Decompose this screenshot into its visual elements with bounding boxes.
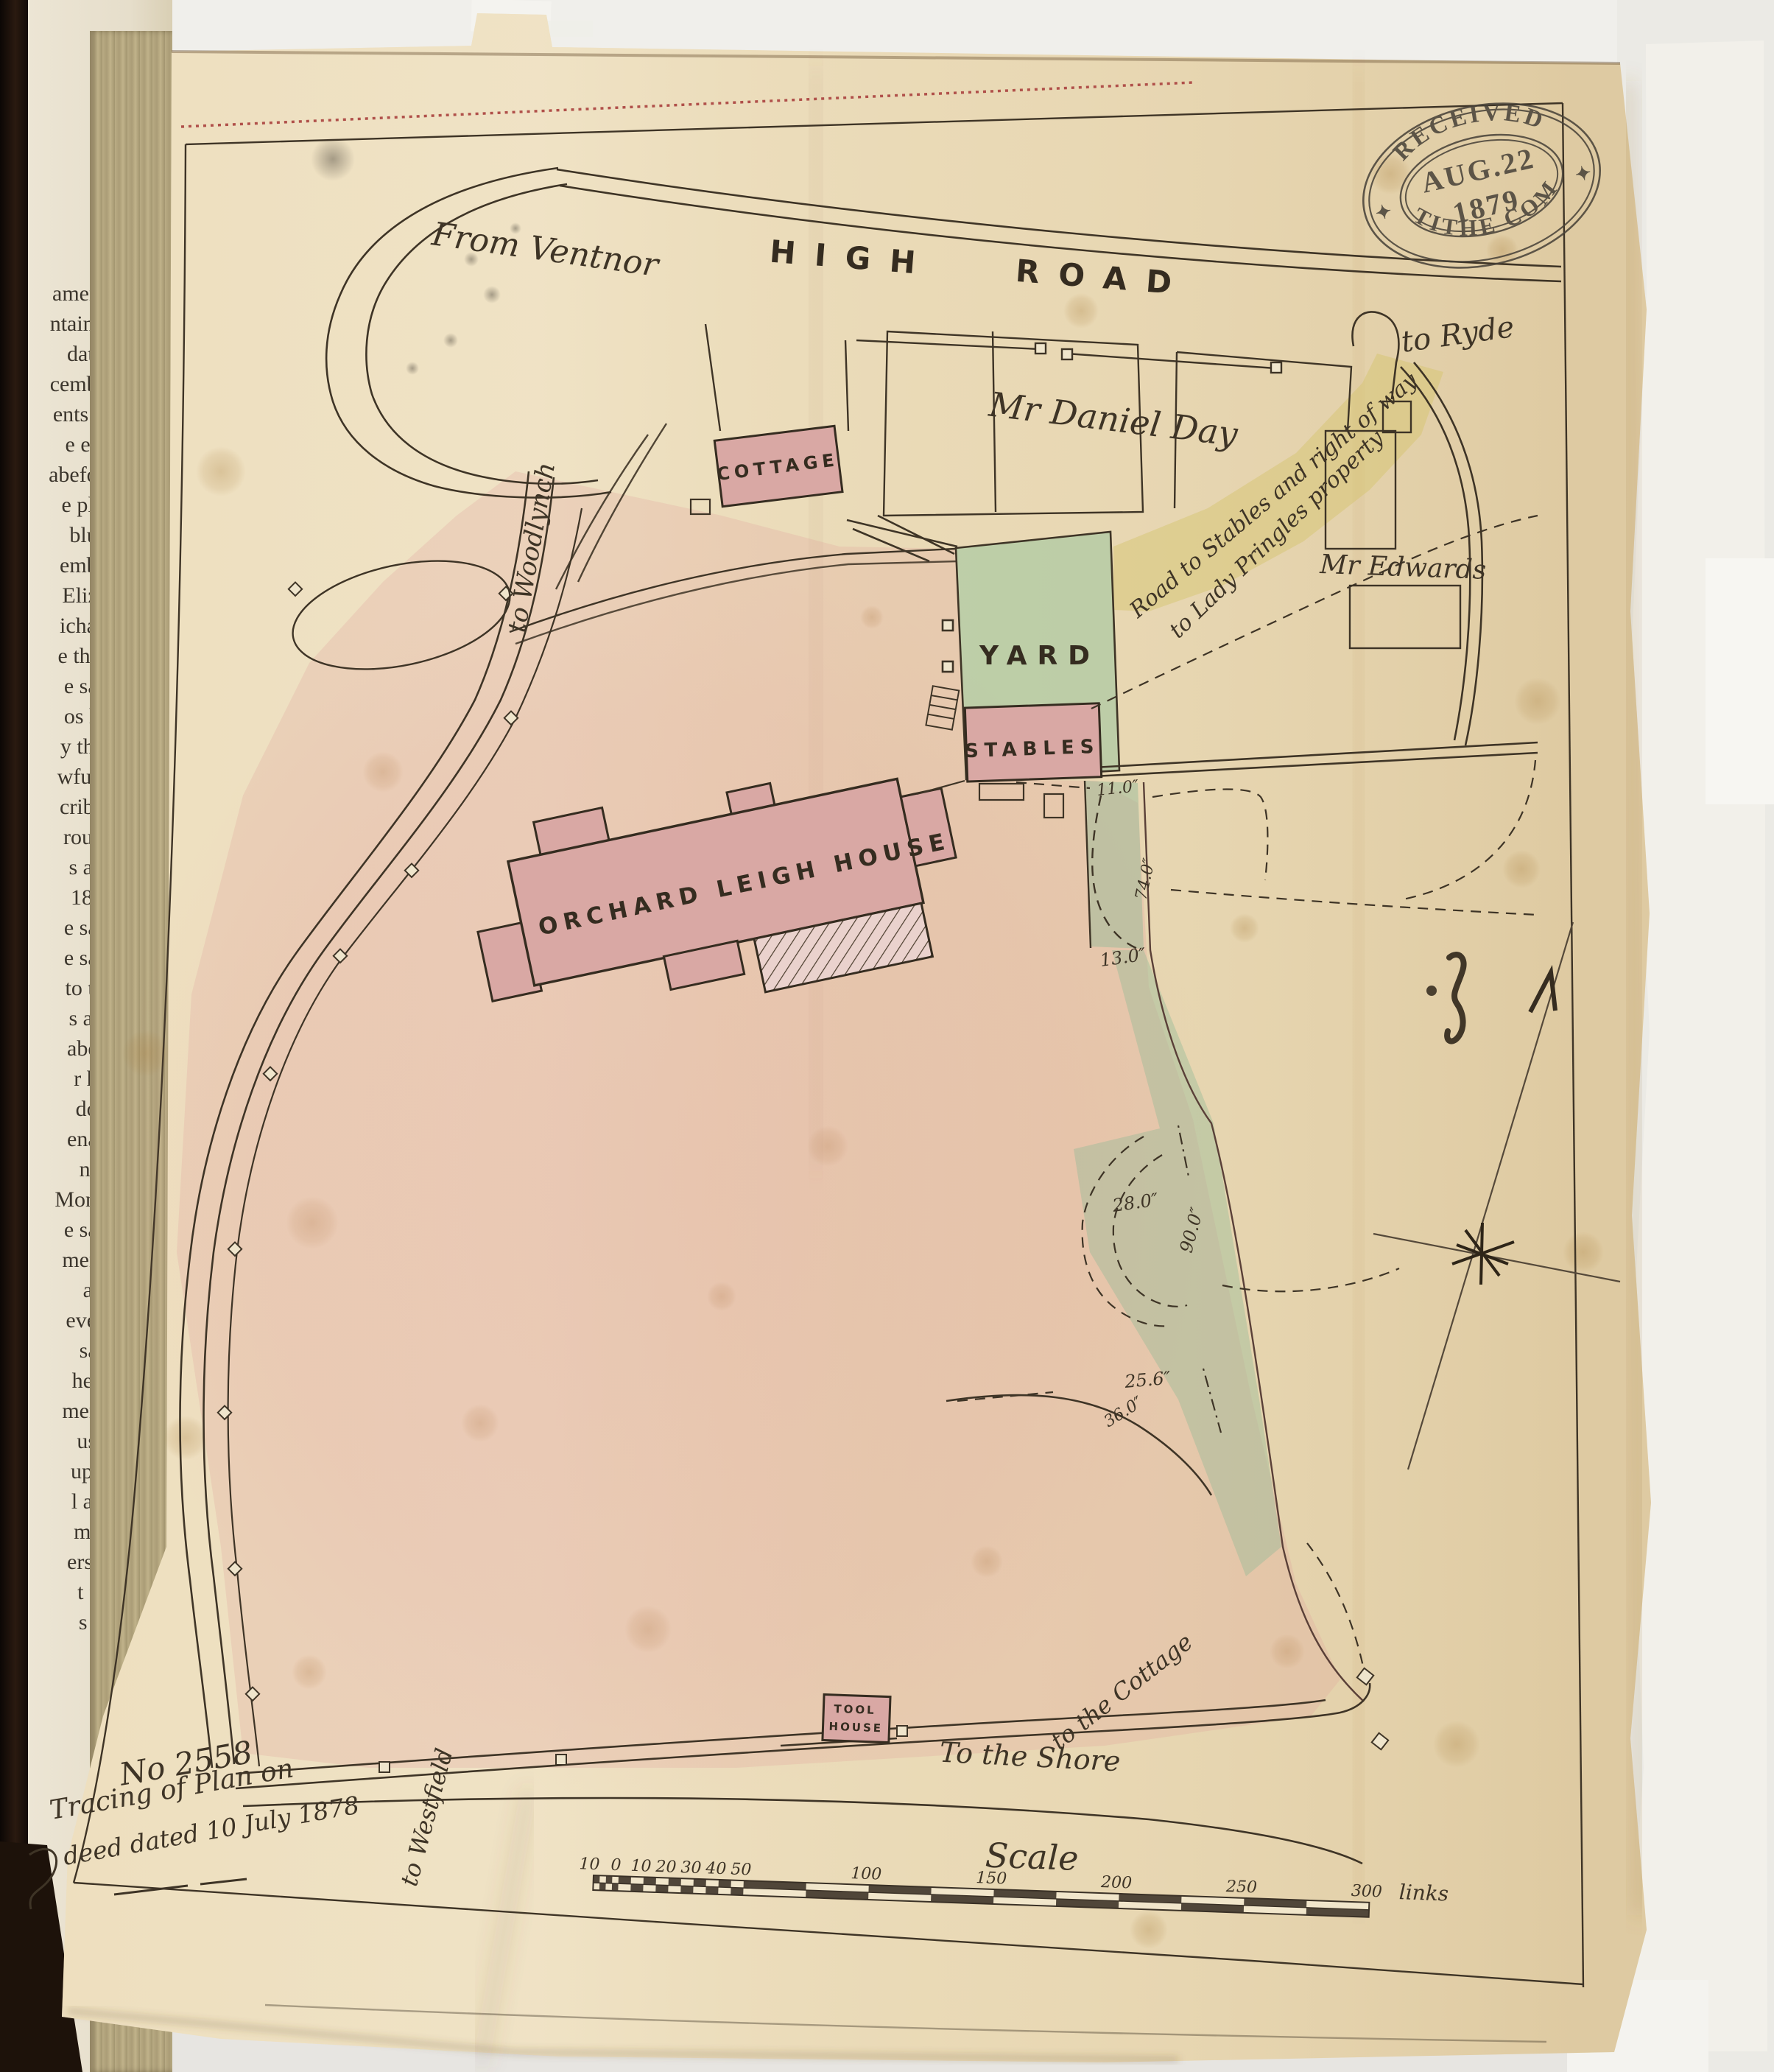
tick: 30 bbox=[680, 1858, 702, 1878]
stables-label: STABLES bbox=[965, 736, 1100, 762]
tick: 10 bbox=[630, 1857, 652, 1876]
tracing-sheet: ORCHARD LEIGH HOUSE bbox=[29, 13, 1651, 2067]
scale-unit: links bbox=[1398, 1880, 1449, 1906]
tool-house-label-2: HOUSE bbox=[828, 1720, 883, 1735]
edwards-label: Mr Edwards bbox=[1319, 549, 1487, 586]
tick: 300 bbox=[1351, 1882, 1382, 1901]
tick: 150 bbox=[976, 1869, 1007, 1888]
plan-sheet-svg: ORCHARD LEIGH HOUSE bbox=[0, 0, 1774, 2072]
measure-25: 25.6″ bbox=[1123, 1368, 1172, 1392]
tick: 10 bbox=[579, 1855, 600, 1874]
tick: 0 bbox=[610, 1856, 622, 1875]
tape-right bbox=[1706, 558, 1774, 804]
tick: 250 bbox=[1225, 1878, 1258, 1897]
tick: 50 bbox=[731, 1861, 752, 1880]
tick: 200 bbox=[1100, 1873, 1133, 1892]
tool-house-label-1: TOOL bbox=[834, 1702, 876, 1717]
tool-house: TOOL HOUSE bbox=[823, 1694, 890, 1742]
scanned-book-opening: aments ntained dated cember ents an e ea… bbox=[0, 0, 1774, 2072]
tick: 20 bbox=[655, 1858, 677, 1877]
strip-green-1 bbox=[1085, 781, 1144, 949]
tick: 40 bbox=[705, 1859, 727, 1878]
tick: 100 bbox=[851, 1864, 882, 1883]
yard-label: YARD bbox=[979, 641, 1100, 671]
